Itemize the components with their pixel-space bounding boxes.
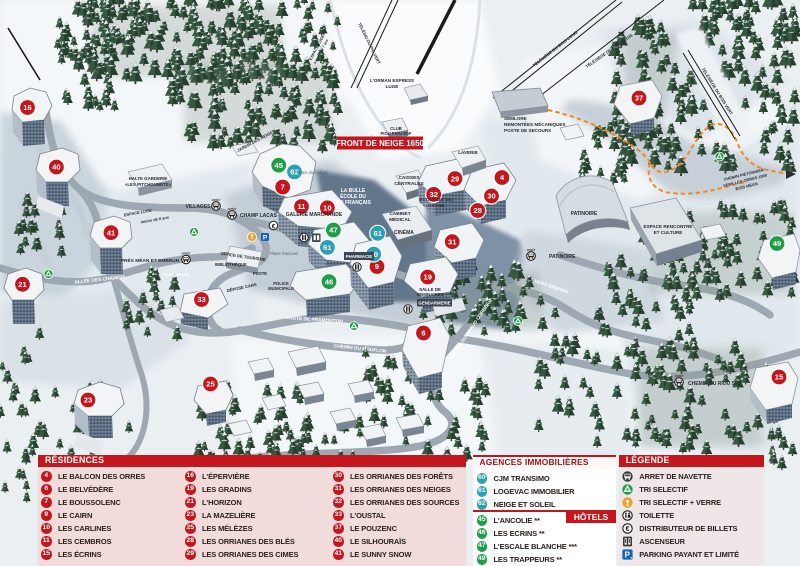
svg-text:BIBLIOTHÈQUE: BIBLIOTHÈQUE xyxy=(215,262,247,267)
svg-text:ET CULTURE: ET CULTURE xyxy=(654,230,683,235)
svg-text:25: 25 xyxy=(206,380,215,389)
svg-text:LAVERIE: LAVERIE xyxy=(458,150,478,155)
svg-text:FRONT DE NEIGE 1650: FRONT DE NEIGE 1650 xyxy=(336,139,425,148)
svg-text:L'ORMAN EXPRESS: L'ORMAN EXPRESS xyxy=(370,78,414,83)
svg-text:GALERIE MARCHANDE: GALERIE MARCHANDE xyxy=(286,212,343,218)
svg-text:«LES PITCHOUNETS»: «LES PITCHOUNETS» xyxy=(125,182,172,187)
svg-text:POSTE DE SECOURS: POSTE DE SECOURS xyxy=(504,128,551,133)
svg-text:SÉMINAIRES: SÉMINAIRES xyxy=(416,292,443,297)
svg-text:€: € xyxy=(272,223,276,230)
svg-text:CABINET: CABINET xyxy=(389,211,410,217)
svg-text:37: 37 xyxy=(635,94,643,103)
svg-text:31: 31 xyxy=(448,237,457,246)
svg-text:30: 30 xyxy=(487,192,495,201)
svg-text:28: 28 xyxy=(473,206,481,215)
svg-text:CHEMIN DU RIOU SEC: CHEMIN DU RIOU SEC xyxy=(688,381,742,387)
svg-text:ÉCOLE DU: ÉCOLE DU xyxy=(340,192,366,200)
svg-text:Place d'accueil: Place d'accueil xyxy=(270,251,299,256)
svg-text:23: 23 xyxy=(84,396,92,405)
svg-text:PIOU PIOU ESF: PIOU PIOU ESF xyxy=(381,131,412,136)
svg-text:16: 16 xyxy=(23,103,31,112)
svg-text:33: 33 xyxy=(197,295,205,304)
svg-text:19: 19 xyxy=(423,273,431,282)
svg-text:CINÉMA: CINÉMA xyxy=(394,228,414,236)
svg-text:29: 29 xyxy=(451,174,459,183)
svg-text:6: 6 xyxy=(421,329,425,338)
svg-text:POSTE: POSTE xyxy=(253,271,267,276)
svg-text:P: P xyxy=(263,235,268,242)
svg-text:P: P xyxy=(624,551,630,560)
svg-text:45: 45 xyxy=(274,161,283,170)
svg-text:7: 7 xyxy=(281,183,285,192)
svg-text:OZONE: OZONE xyxy=(427,203,445,209)
svg-text:15: 15 xyxy=(775,373,784,382)
svg-text:CHAMP LACAS: CHAMP LACAS xyxy=(240,213,278,219)
svg-text:41: 41 xyxy=(107,228,116,237)
svg-text:LUGE: LUGE xyxy=(386,84,399,89)
svg-text:PATINOIRE: PATINOIRE xyxy=(571,211,598,217)
svg-text:HALTE GARDERIE: HALTE GARDERIE xyxy=(129,176,168,181)
svg-text:CAISSES: CAISSES xyxy=(398,175,420,181)
svg-text:PATINOIRE: PATINOIRE xyxy=(549,254,576,260)
svg-text:40: 40 xyxy=(52,163,60,172)
svg-text:11: 11 xyxy=(297,202,306,211)
svg-text:REMONTÉES MÉCANIQUES: REMONTÉES MÉCANIQUES xyxy=(504,120,566,127)
svg-text:SEMLORE: SEMLORE xyxy=(504,116,527,121)
svg-text:MUNICIPALE: MUNICIPALE xyxy=(268,286,294,291)
svg-text:GENDARMERIE: GENDARMERIE xyxy=(418,301,450,306)
svg-text:€: € xyxy=(625,524,629,533)
svg-text:61: 61 xyxy=(373,229,382,238)
svg-text:Place du festival: Place du festival xyxy=(297,170,329,175)
svg-text:61: 61 xyxy=(323,243,332,252)
svg-text:9: 9 xyxy=(375,262,379,271)
svg-text:46: 46 xyxy=(325,277,333,286)
svg-text:PHARMACIE: PHARMACIE xyxy=(346,254,373,259)
svg-text:21: 21 xyxy=(18,280,27,289)
svg-text:SKI FRANÇAIS: SKI FRANÇAIS xyxy=(335,200,371,206)
svg-text:VILLAGES: VILLAGES xyxy=(185,204,211,210)
svg-text:ESPACE RENCONTRE: ESPACE RENCONTRE xyxy=(644,224,693,229)
svg-text:PONT SIEURS: PONT SIEURS xyxy=(163,272,190,277)
svg-text:47: 47 xyxy=(329,226,337,235)
svg-text:CENTRALES: CENTRALES xyxy=(394,181,424,187)
svg-text:49: 49 xyxy=(773,239,781,248)
